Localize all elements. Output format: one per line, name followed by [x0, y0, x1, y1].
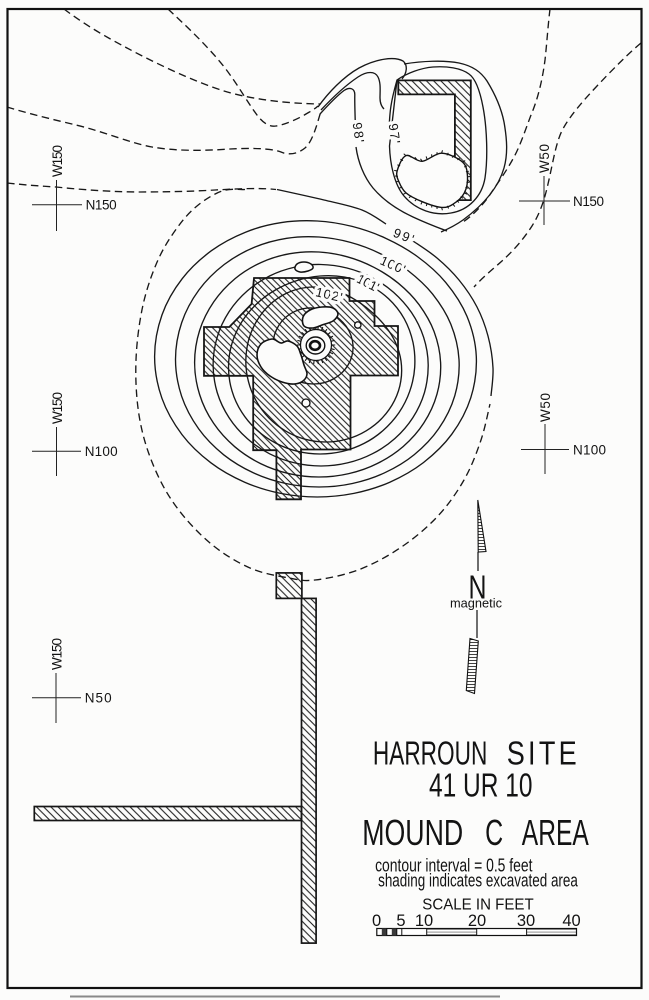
svg-text:N50: N50	[85, 691, 112, 706]
svg-text:magnetic: magnetic	[450, 597, 502, 611]
svg-text:W50: W50	[537, 144, 552, 173]
svg-text:5: 5	[396, 912, 405, 930]
svg-text:W150: W150	[50, 392, 65, 424]
svg-text:N100: N100	[85, 444, 118, 459]
svg-text:98': 98'	[350, 121, 368, 143]
svg-text:W50: W50	[538, 393, 553, 422]
svg-text:C: C	[485, 812, 503, 853]
svg-text:41 UR 10: 41 UR 10	[429, 767, 533, 804]
svg-text:SCALE IN FEET: SCALE IN FEET	[422, 897, 534, 914]
svg-text:N150: N150	[573, 194, 604, 209]
svg-text:40: 40	[562, 912, 580, 930]
svg-text:shading indicates excavated ar: shading indicates excavated area	[378, 871, 579, 891]
svg-text:0: 0	[372, 912, 381, 930]
svg-text:30: 30	[517, 912, 535, 930]
svg-text:N100: N100	[573, 443, 606, 458]
svg-text:N150: N150	[86, 198, 117, 213]
svg-text:W150: W150	[50, 145, 65, 177]
svg-text:AREA: AREA	[522, 812, 589, 853]
svg-text:W150: W150	[50, 638, 65, 670]
svg-text:20: 20	[468, 912, 486, 930]
svg-text:MOUND: MOUND	[362, 812, 463, 853]
svg-text:97': 97'	[386, 122, 404, 144]
svg-text:10: 10	[415, 912, 433, 930]
